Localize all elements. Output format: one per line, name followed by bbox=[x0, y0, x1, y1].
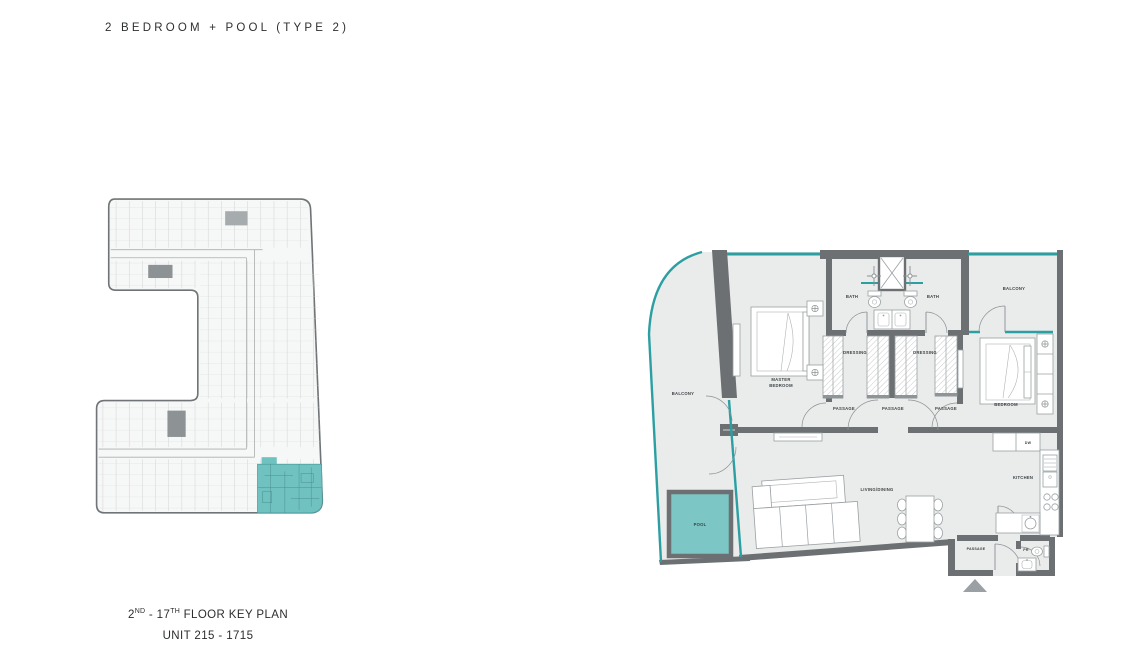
label-kitchen: KITCHEN bbox=[1013, 475, 1033, 480]
label-balcony-left: BALCONY bbox=[672, 391, 694, 396]
service-shaft bbox=[879, 256, 905, 290]
label-bedroom: BEDROOM bbox=[994, 402, 1018, 407]
tv-console bbox=[774, 433, 822, 441]
entrance-arrow bbox=[963, 579, 987, 592]
floor-plan-page: { "title": "2 BEDROOM + POOL (TYPE 2)", … bbox=[0, 0, 1123, 663]
label-passage-center: PASSAGE bbox=[882, 406, 904, 411]
unit-plan: BALCONY MASTER BEDROOM BATH BATH BALCONY… bbox=[643, 246, 1117, 598]
unit-range-label: UNIT 215 - 1715 bbox=[78, 626, 338, 647]
bedroom-panel bbox=[958, 350, 963, 388]
label-dressing-right: DRESSING bbox=[913, 350, 937, 355]
label-powder-room: PR bbox=[1023, 548, 1029, 552]
master-mirror bbox=[733, 324, 740, 376]
floor-range-label: 2ND - 17TH FLOOR KEY PLAN bbox=[78, 601, 338, 626]
key-plan-caption: 2ND - 17TH FLOOR KEY PLAN UNIT 215 - 171… bbox=[78, 601, 338, 647]
label-bath-left: BATH bbox=[846, 294, 858, 299]
label-pool: POOL bbox=[694, 522, 707, 527]
label-master-line1: MASTER bbox=[771, 377, 790, 382]
label-dressing-left: DRESSING bbox=[843, 350, 867, 355]
label-master-line2: BEDROOM bbox=[769, 383, 793, 388]
wardrobe bbox=[895, 336, 917, 399]
dining-set bbox=[898, 496, 943, 542]
label-passage-right: PASSAGE bbox=[935, 406, 957, 411]
key-plan-highlighted-unit bbox=[258, 457, 323, 513]
label-dishwasher: DW bbox=[1025, 441, 1032, 445]
wardrobe bbox=[867, 336, 889, 399]
double-vanity bbox=[874, 310, 910, 329]
label-passage-left: PASSAGE bbox=[833, 406, 855, 411]
toilet-right bbox=[904, 291, 917, 308]
label-passage-entry: PASSAGE bbox=[967, 547, 986, 551]
pr-toilet bbox=[1032, 547, 1043, 556]
label-balcony-right: BALCONY bbox=[1003, 286, 1025, 291]
label-living-dining: LIVING/DINING bbox=[860, 487, 893, 492]
page-title: 2 BEDROOM + POOL (TYPE 2) bbox=[105, 22, 349, 34]
oven bbox=[1043, 472, 1057, 487]
wardrobe bbox=[823, 336, 843, 399]
key-plan bbox=[93, 194, 333, 524]
wardrobe bbox=[935, 336, 957, 397]
label-bath-right: BATH bbox=[927, 294, 939, 299]
toilet-left bbox=[868, 291, 881, 308]
sofa bbox=[752, 474, 860, 548]
